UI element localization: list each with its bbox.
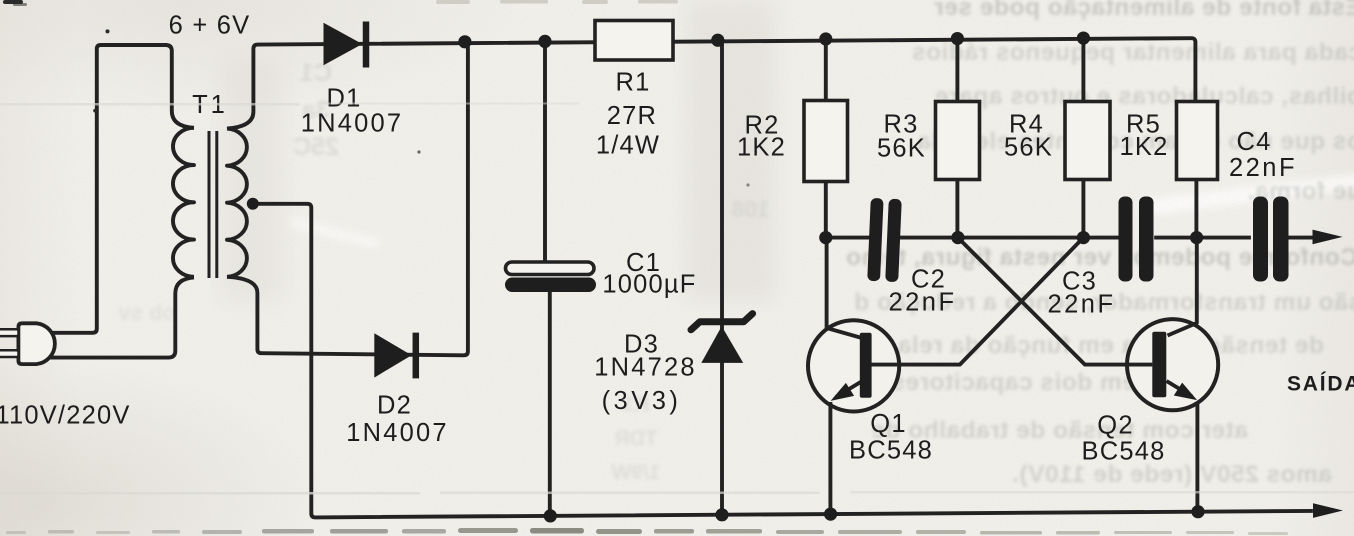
svg-text:27R: 27R [607, 102, 657, 130]
svg-text:R1: R1 [616, 69, 651, 97]
svg-text:1000µF: 1000µF [602, 271, 696, 299]
svg-text:56K: 56K [877, 135, 926, 163]
svg-text:1/4W: 1/4W [596, 132, 660, 160]
svg-text:22nF: 22nF [888, 289, 956, 317]
svg-text:BC548: BC548 [849, 437, 933, 465]
svg-text:1N4007: 1N4007 [301, 110, 404, 138]
svg-text:Q1: Q1 [870, 410, 906, 438]
svg-text:110V/220V: 110V/220V [0, 402, 131, 430]
svg-text:56K: 56K [1004, 134, 1053, 162]
svg-text:Q2: Q2 [1097, 412, 1133, 440]
svg-text:1N4007: 1N4007 [346, 419, 449, 447]
svg-text:1K2: 1K2 [1120, 133, 1169, 161]
svg-text:6 + 6V: 6 + 6V [169, 12, 251, 40]
svg-text:1N4728: 1N4728 [594, 354, 697, 382]
svg-text:SAÍDA: SAÍDA [1287, 373, 1354, 396]
svg-text:1K2: 1K2 [737, 134, 786, 162]
svg-text:22nF: 22nF [1047, 291, 1115, 319]
svg-text:(3V3): (3V3) [602, 387, 682, 415]
svg-text:C4: C4 [1237, 128, 1272, 156]
svg-text:D2: D2 [377, 392, 412, 420]
svg-text:22nF: 22nF [1229, 154, 1297, 182]
svg-text:D1: D1 [327, 85, 362, 113]
svg-text:BC548: BC548 [1082, 438, 1166, 466]
